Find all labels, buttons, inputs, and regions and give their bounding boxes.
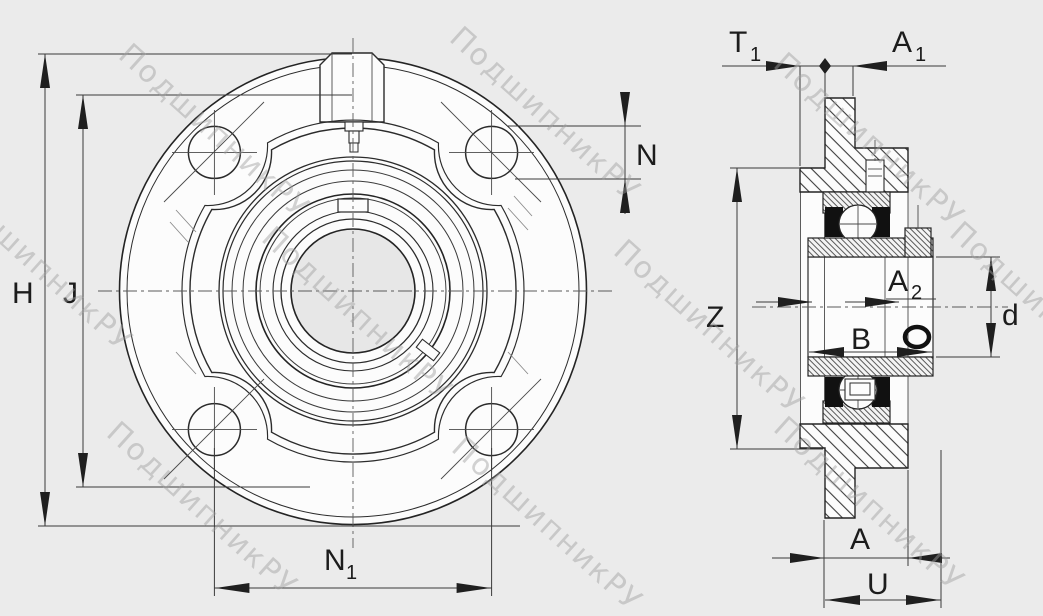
dim-label-N1-sub: 1 xyxy=(346,562,357,584)
grease-nipple-boss xyxy=(320,53,384,122)
dim-label-N1: N xyxy=(324,544,346,577)
technical-drawing-canvas: H J N N 1 T 1 A 1 xyxy=(0,0,1043,616)
dim-label-A2-sub: 2 xyxy=(911,282,922,304)
screw-head-bottom xyxy=(845,379,875,400)
dim-label-A2: A xyxy=(888,265,908,298)
dim-label-T1: T xyxy=(729,26,747,59)
dim-label-A1-sub: 1 xyxy=(915,44,926,66)
dim-label-U: U xyxy=(867,568,889,601)
watermark-text: ПодшипникРУ xyxy=(607,233,812,422)
inner-ring-collar-bottom xyxy=(808,357,933,376)
ball-top xyxy=(839,205,877,243)
dim-label-A1: A xyxy=(892,26,912,59)
dim-label-B: B xyxy=(851,323,871,356)
dim-label-A: A xyxy=(850,523,870,556)
watermark-text: ПодшипникРУ xyxy=(943,215,1043,404)
dim-label-N: N xyxy=(636,139,658,172)
watermark-text: ПодшипникРУ xyxy=(0,170,139,359)
dim-label-T1-sub: 1 xyxy=(750,44,761,66)
